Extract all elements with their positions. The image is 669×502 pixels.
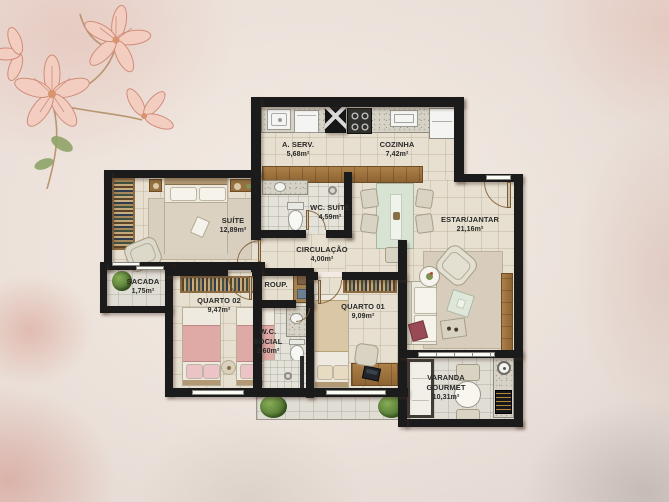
room-label-cozinha: COZINHA 7,42m² [362,140,432,159]
wall-segment [251,97,464,107]
suite-nightstand-left [149,179,162,192]
wall-segment [342,272,406,280]
room-label-quarto01: QUARTO 01 9,09m² [328,302,398,321]
entry-door-leaf [507,182,511,208]
room-label-suite: SUÍTE 12,89m² [203,216,263,235]
room-label-quarto02: QUARTO 02 9,47m² [184,296,254,315]
wall-segment [398,240,407,427]
flower-illustration-icon [0,0,177,189]
sliding-door-sacada [136,266,164,270]
quarto02-bed-left [182,307,221,386]
room-label-wc-suite: WC. SUÍTE 4,59m² [295,203,365,222]
dining-chair [415,188,434,209]
room-label-estar-jantar: ESTAR/JANTAR 21,16m² [420,215,520,234]
wall-segment [258,300,296,308]
dining-table [376,183,414,249]
room-label-wc-social: W.C. SOCIAL 3,60m² [249,327,287,356]
quarto02-round-rug [221,360,236,375]
coffee-table-low [440,317,467,339]
shower-door [300,356,304,388]
wall-segment [454,97,464,182]
laundry-sink [267,109,291,130]
stove-cooktop [347,108,372,134]
room-label-varanda-gourmet: VARANDA GOURMET 10,31m² [409,373,483,402]
wall-segment [165,268,228,276]
side-table-round [419,266,440,287]
wall-segment [100,306,172,313]
barbecue-grill [495,390,512,414]
window-quarto01 [326,390,386,395]
window-entry [486,175,511,180]
wall-segment [514,174,523,427]
wall-segment [306,268,314,398]
door-leaf [318,280,321,304]
kitchen-sink [390,110,418,127]
wall-segment [104,170,260,178]
wc-suite-basin [274,182,286,192]
room-label-circulacao: CIRCULAÇÃO 4,00m² [277,245,367,264]
room-label-sacada: SACADA 1,75m² [113,277,173,296]
ledge-plant [260,395,287,418]
shower-head-icon [284,372,292,380]
fridge [429,108,455,139]
wall-segment [404,419,523,427]
shower-head-icon [328,186,337,195]
door-leaf [258,240,261,262]
wall-segment [100,262,107,312]
wall-segment [251,97,261,178]
grill-sink [497,361,511,375]
quarto01-chair [354,343,380,368]
wall-segment [306,272,318,280]
wc-social-shower [263,360,303,388]
window-quarto02 [192,390,244,395]
tv-rack [501,273,513,352]
wall-segment [104,170,112,270]
sofa [403,281,437,345]
wall-segment [258,230,306,238]
suite-wardrobe [112,178,135,250]
glass-door-varanda [418,352,495,357]
room-label-roupeiro: ROUP. [258,280,294,290]
washing-machine [294,110,319,133]
floorplan-canvas: A. SERV. 5,68m² COZINHA 7,42m² SUÍTE 12,… [0,0,669,502]
room-label-aserv: A. SERV. 5,68m² [263,140,333,159]
